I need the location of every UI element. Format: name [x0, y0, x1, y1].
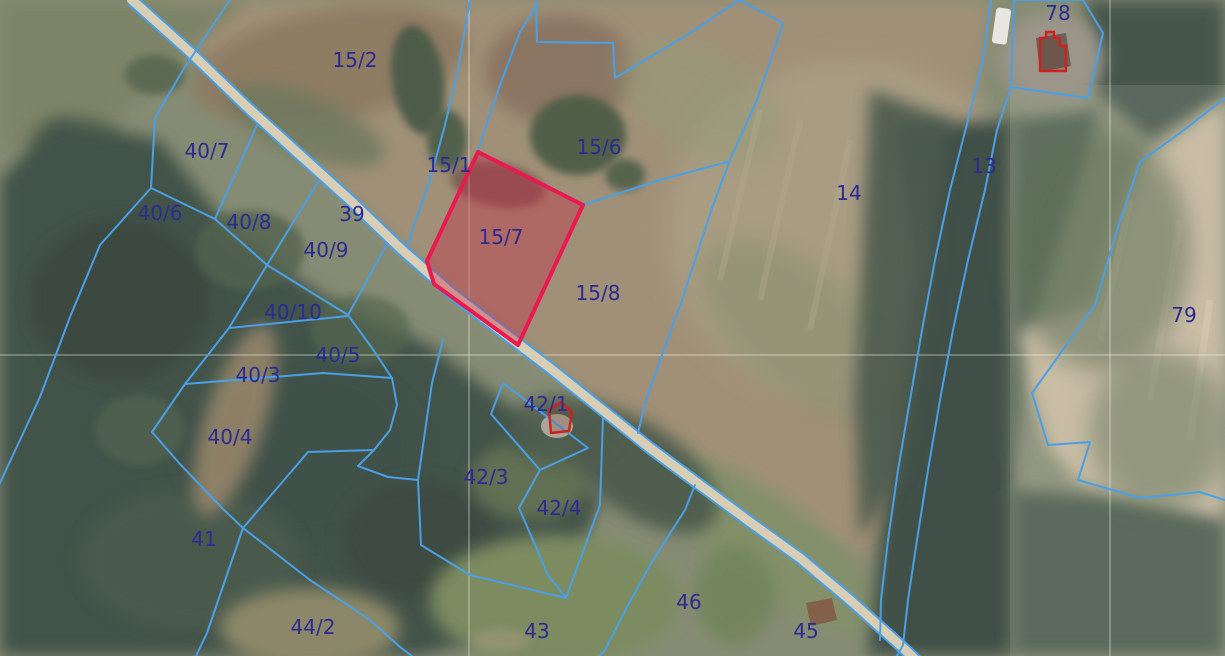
parcel-label-39: 39 — [339, 202, 364, 226]
parcel-label-40-3: 40/3 — [236, 363, 281, 387]
parcel-label-79: 79 — [1171, 303, 1196, 327]
parcel-label-13: 13 — [971, 154, 996, 178]
parcel-label-40-4: 40/4 — [208, 425, 253, 449]
parcel-label-42-4: 42/4 — [537, 496, 582, 520]
parcel-label-45: 45 — [793, 619, 818, 643]
parcel-label-42-3: 42/3 — [464, 465, 509, 489]
parcel-label-40-10: 40/10 — [264, 300, 322, 324]
parcel-label-15-2: 15/2 — [333, 48, 378, 72]
parcel-label-46: 46 — [676, 590, 701, 614]
aerial-imagery — [0, 0, 1225, 656]
cadastral-map-canvas[interactable]: 15/240/740/640/83940/915/115/615/715/814… — [0, 0, 1225, 656]
parcel-label-44-2: 44/2 — [291, 615, 336, 639]
parcel-label-42-1: 42/1 — [524, 392, 569, 416]
parcel-label-78: 78 — [1045, 1, 1070, 25]
parcel-label-43: 43 — [524, 619, 549, 643]
parcel-label-40-9: 40/9 — [304, 238, 349, 262]
parcel-label-14: 14 — [836, 181, 861, 205]
parcel-label-41: 41 — [191, 527, 216, 551]
parcel-label-40-6: 40/6 — [138, 201, 183, 225]
parcel-label-40-7: 40/7 — [185, 139, 230, 163]
parcel-label-40-8: 40/8 — [227, 210, 272, 234]
parcel-label-40-5: 40/5 — [316, 343, 361, 367]
parcel-label-15-6: 15/6 — [577, 135, 622, 159]
parcel-label-15-7: 15/7 — [479, 225, 524, 249]
parcel-label-15-8: 15/8 — [576, 281, 621, 305]
parcel-label-15-1: 15/1 — [427, 153, 472, 177]
